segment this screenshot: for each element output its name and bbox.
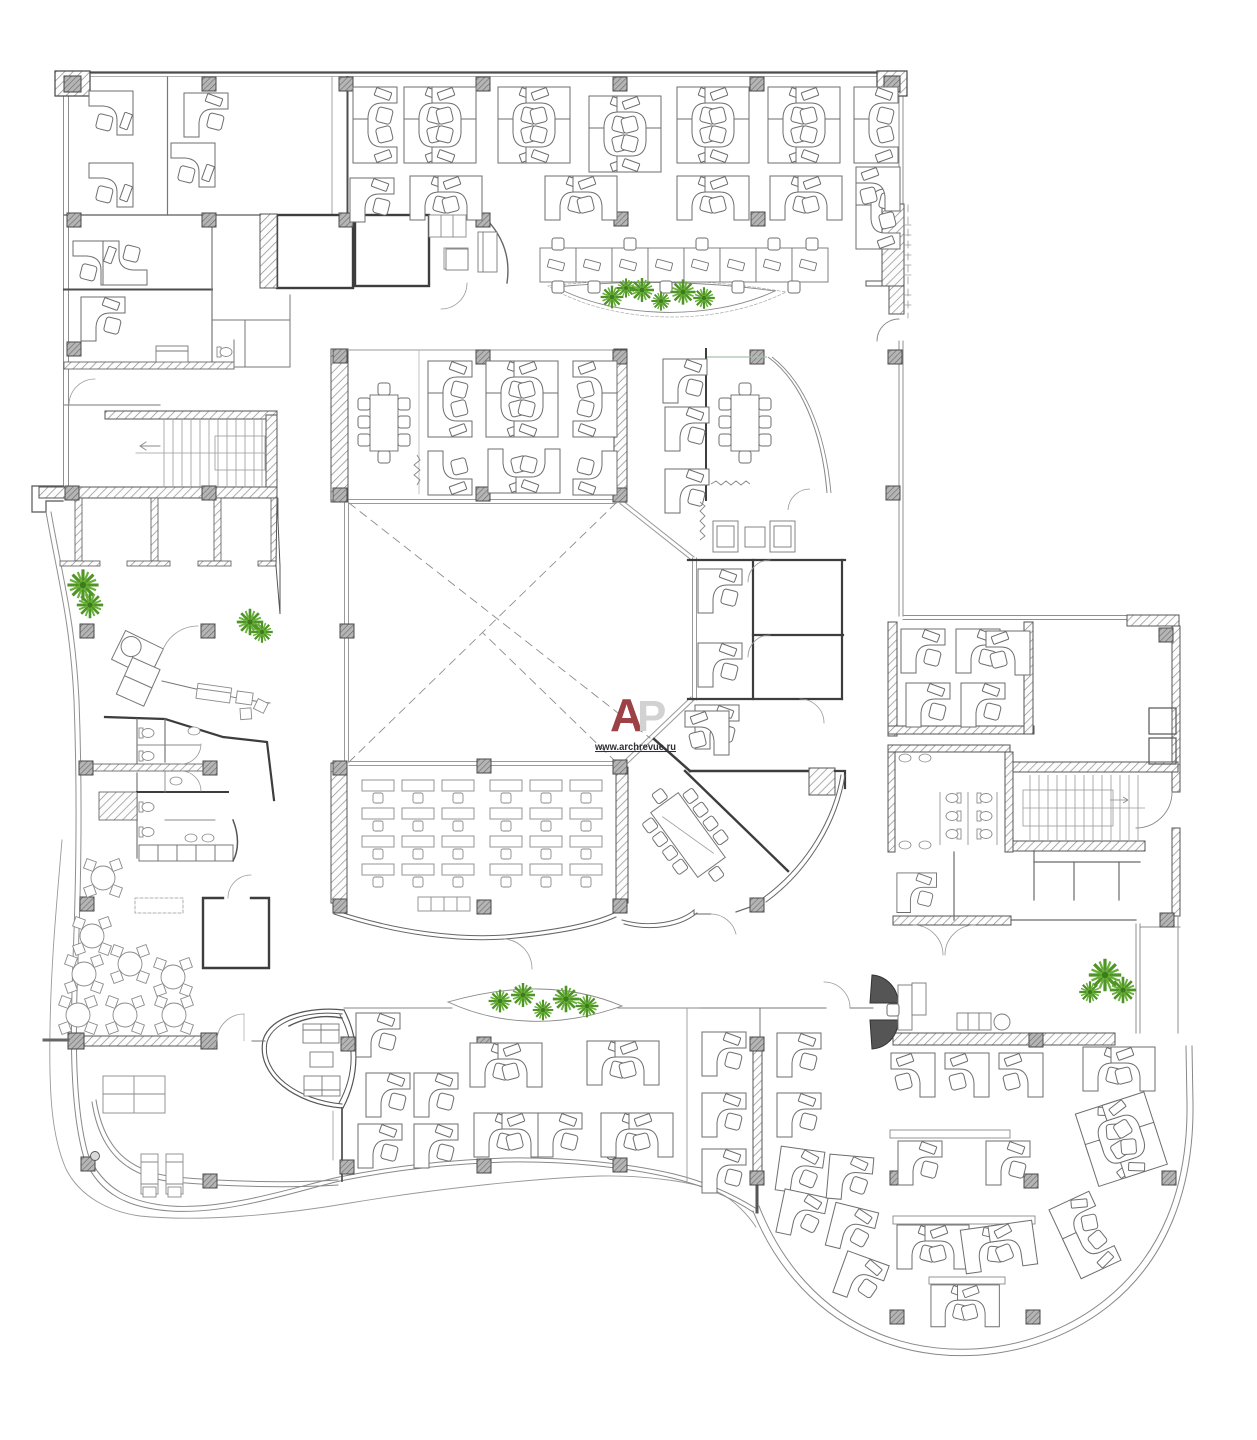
svg-text:Р: Р: [637, 692, 666, 741]
svg-text:www.archrevue.ru: www.archrevue.ru: [594, 741, 676, 753]
